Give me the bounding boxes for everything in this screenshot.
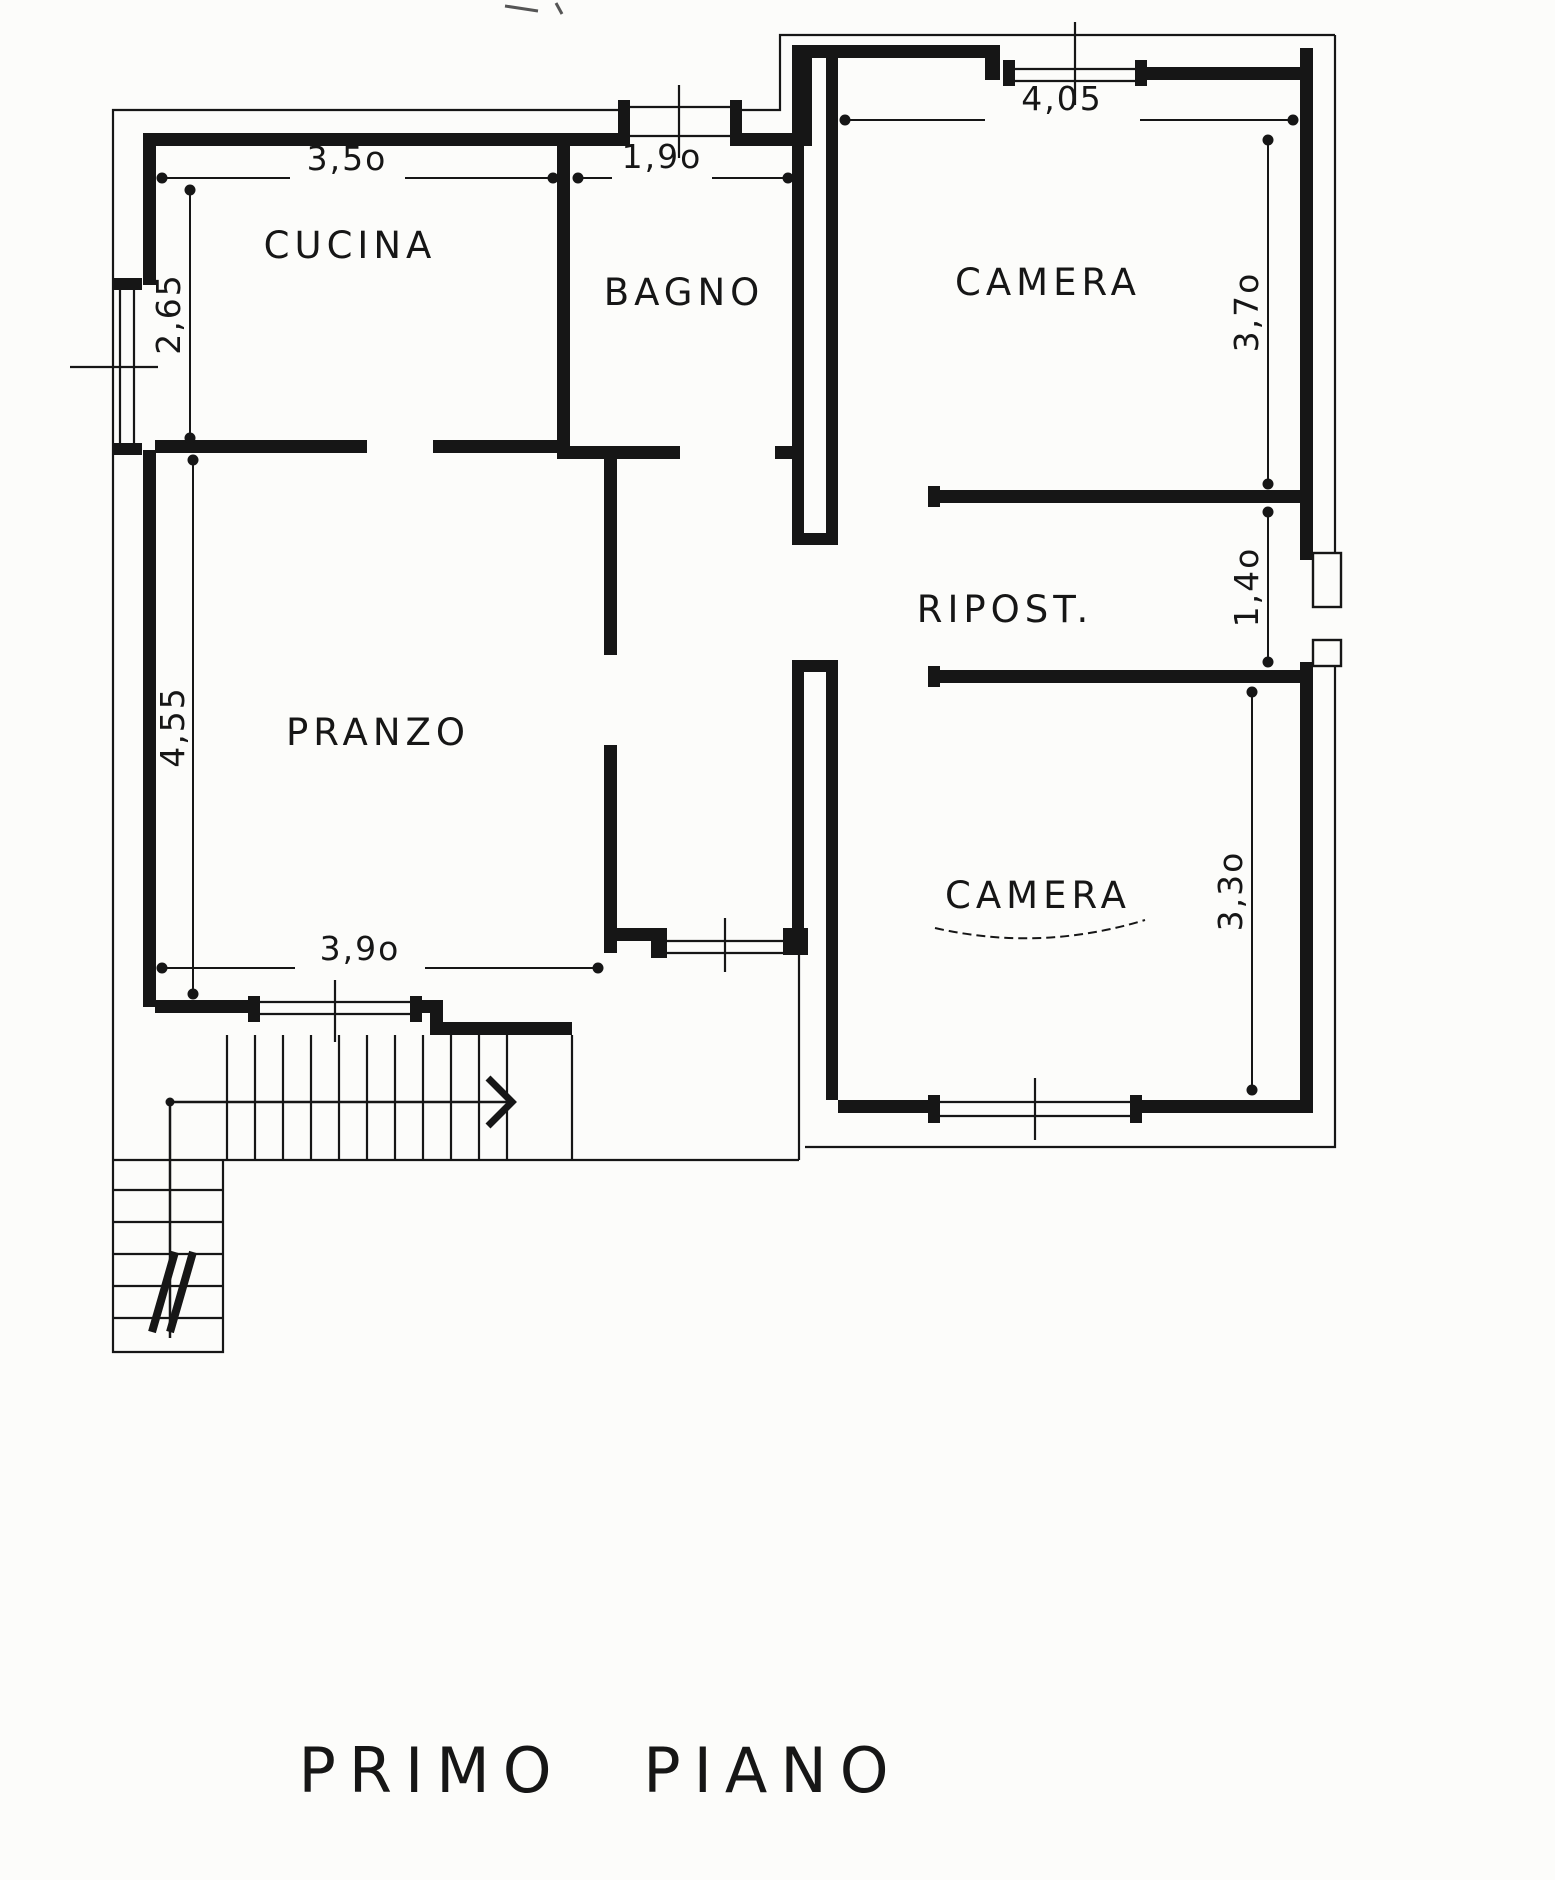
svg-text:3,5o: 3,5o [307,139,388,178]
room-label-ripost: RIPOST. [917,588,1094,631]
svg-text:4,05: 4,05 [1021,79,1102,118]
room-label-camera-bottom: CAMERA [945,874,1131,917]
room-label-camera-top: CAMERA [955,261,1141,304]
svg-text:3,9o: 3,9o [320,929,401,968]
page-title: PRIMO PIANO [298,1734,901,1807]
svg-text:1,9o: 1,9o [622,137,703,176]
room-label-cucina: CUCINA [264,224,437,267]
room-label-pranzo: PRANZO [286,711,470,754]
room-label-bagno: BAGNO [604,271,765,314]
paper-background [0,0,1555,1875]
svg-text:3,3o: 3,3o [1211,851,1250,932]
svg-text:4,55: 4,55 [153,686,192,767]
svg-text:1,4o: 1,4o [1227,547,1266,628]
svg-text:2,65: 2,65 [149,273,188,354]
floor-plan-drawing: 3,5o 1,9o 4,05 2,65 4,55 [0,0,1555,1875]
svg-text:3,7o: 3,7o [1227,272,1266,353]
scanned-floor-plan-page: 3,5o 1,9o 4,05 2,65 4,55 [0,0,1555,1875]
